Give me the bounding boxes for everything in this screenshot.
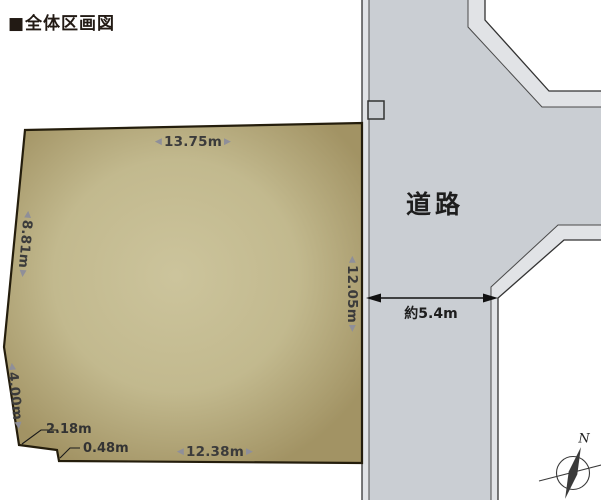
dim-top-value: 13.75m bbox=[164, 134, 222, 150]
dim-arrow-left-icon: ◀ bbox=[7, 362, 17, 370]
dim-arrow-right-icon: ▶ bbox=[246, 448, 253, 457]
road-width-label: 約5.4m bbox=[404, 303, 457, 323]
road-marker bbox=[368, 101, 384, 119]
road-surface bbox=[369, 0, 601, 500]
lot-plan-diagram: ■全体区画図 ◀ 13.75m ▶ ◀ 8.81m ▶ ◀ 4.00m ▶ ◀ … bbox=[0, 0, 601, 500]
dim-arrow-left-icon: ◀ bbox=[177, 448, 184, 457]
dim-arrow-left-icon: ◀ bbox=[348, 256, 357, 263]
compass-icon bbox=[539, 446, 601, 500]
dim-arrow-right-icon: ▶ bbox=[348, 325, 357, 332]
dim-step-b: 0.48m bbox=[83, 441, 129, 456]
page-title: ■全体区画図 bbox=[8, 9, 115, 34]
dim-bottom: ◀ 12.38m ▶ bbox=[177, 444, 253, 460]
dim-arrow-right-icon: ▶ bbox=[224, 138, 231, 147]
dim-arrow-left-icon: ◀ bbox=[23, 210, 33, 218]
dim-top: ◀ 13.75m ▶ bbox=[155, 134, 231, 150]
parcel-polygon bbox=[4, 123, 362, 463]
dim-arrow-left-icon: ◀ bbox=[155, 138, 162, 147]
dim-right-value: 12.05m bbox=[344, 265, 360, 323]
dim-right: ◀ 12.05m ▶ bbox=[344, 256, 360, 332]
dim-arrow-right-icon: ▶ bbox=[13, 422, 23, 430]
dim-arrow-right-icon: ▶ bbox=[18, 270, 28, 278]
dim-bottom-value: 12.38m bbox=[186, 444, 244, 460]
dim-step-a: 2.18m bbox=[46, 422, 92, 437]
road-label: 道路 bbox=[406, 185, 464, 221]
compass-north-label: N bbox=[578, 432, 589, 447]
